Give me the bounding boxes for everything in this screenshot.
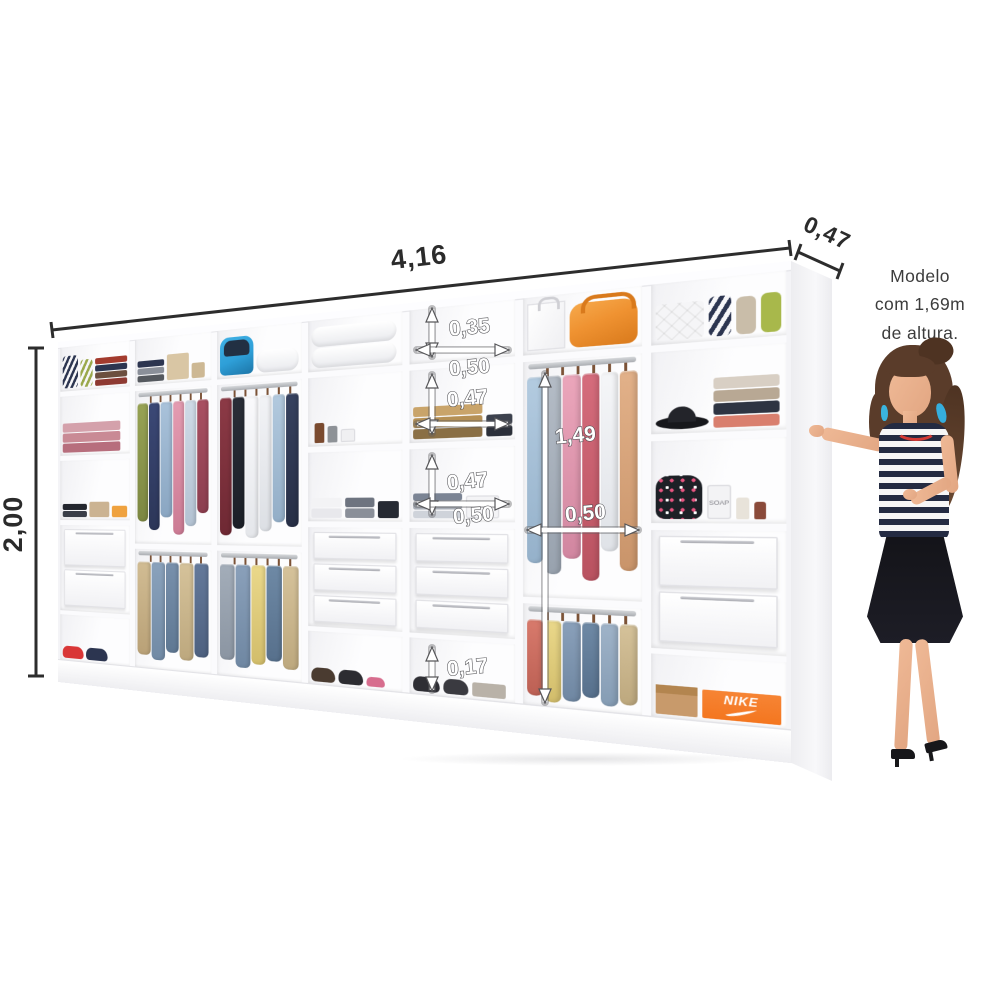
shelf-cell [60,340,129,391]
cardboard-box [656,684,698,717]
hanging-shirt [161,401,172,517]
folded-item [713,414,779,428]
width-dimension-label: 4,16 [389,239,449,275]
model-hand [903,489,917,500]
drawer-handle [75,532,113,535]
cosmetic-bottle [315,423,325,443]
shoe [443,678,468,695]
hanging-pants [151,562,164,661]
drawer [64,569,125,609]
wooden-box [192,362,205,378]
backpack [220,335,253,376]
drawer-handle [432,537,490,540]
drawer-handle [432,604,490,609]
drawer-handle [329,567,381,571]
hanging-shirt [286,393,299,527]
drawer [659,591,778,648]
storage-box [112,506,128,517]
pillow [735,295,755,334]
caption-line: Modelo [838,262,1000,290]
quilted-storage-box [656,300,705,341]
drawer-handle [329,536,381,539]
sneaker [63,645,84,659]
wooden-box [167,352,189,380]
shelf-cell [308,450,402,522]
hat-dome [668,406,696,423]
folded-item [63,441,121,453]
drawer-cell [651,530,786,656]
hanging-shirt [600,371,618,551]
boot [339,669,364,686]
hanging-shirt [563,374,580,559]
drawer-handle [680,596,754,602]
hanging-pants [563,621,580,702]
shelf-cell [308,371,402,447]
hanging-shirt [545,375,562,574]
model-neckline [895,419,937,441]
hanging-pants [620,624,638,706]
shoe-heel [895,757,899,767]
folded-sweaters [345,498,374,519]
backpack-flap [224,339,249,357]
drawer-cell [60,525,129,615]
hanging-cell [217,551,302,684]
sneaker [86,647,108,661]
folded-item [63,511,87,517]
shelf-cell [523,286,642,356]
height-dimension: 2,00 [0,348,44,676]
hanging-pants [267,565,282,662]
drawer [659,536,778,590]
model-leg [915,639,941,746]
folded-clothes-stack [63,504,87,517]
hanging-pants [283,566,298,671]
folded-sweaters [713,374,779,428]
hanging-pants [180,563,194,661]
hanging-cell [135,386,211,545]
folded-towels [311,498,341,518]
hanging-shirt [272,394,285,523]
hanging-cell [523,603,642,716]
soap-bottle: SOAP [707,485,731,520]
wardrobe-column-6 [523,286,642,717]
shoe-slot [60,614,129,667]
model-figure [845,345,1000,800]
folded-cushions-stack [95,355,127,386]
wardrobe-column-1 [60,340,129,667]
hanging-shirt [259,395,271,532]
cosmetic-bottle [736,497,749,519]
drawer [314,563,397,593]
shelf-cell [410,363,516,443]
shelf-cell [651,270,786,345]
dimension-tick [789,240,791,256]
floppy-hat [656,405,709,430]
wardrobe-column-2 [135,332,211,675]
soap-bottle-label: SOAP [709,498,729,505]
hanging-pants [582,622,599,699]
folded-item [311,508,341,517]
hanging-shirt [185,400,196,526]
pillow [761,291,782,332]
hanging-jeans-rack [523,619,642,711]
folded-item [713,400,779,415]
folded-item [413,493,462,501]
hanging-pants [220,564,234,660]
hanging-pants [235,564,250,668]
caption-line: de altura. [838,319,1000,347]
drawer [314,532,397,561]
hanging-pants [251,565,266,665]
storage-box [89,502,109,517]
folded-towels [63,420,121,452]
shoe-heel [928,751,934,762]
shelf-cell [135,332,211,386]
shopping-bag [527,300,566,351]
hanging-shirts-rack [523,370,642,583]
model-hand [809,425,824,437]
shelf-cell [308,311,402,372]
earring [881,405,888,421]
drawer [415,533,508,564]
hanging-pants [545,620,562,703]
box-flap [656,684,698,696]
cosmetic-bottle [754,502,766,520]
dimension-tick [51,322,53,338]
orange-duffel-bag [570,297,638,348]
storage-box [472,682,506,699]
nike-swoosh-icon [723,706,759,719]
folded-item [311,498,341,508]
chevron-pillow [709,295,730,337]
flat-shoe [366,677,384,688]
drawer [415,566,508,598]
dimension-tick [795,244,801,260]
white-pillow [256,347,299,374]
depth-dimension-label: 0,47 [800,211,855,255]
product-dimension-image: SOAP NIKE [0,0,1000,1000]
shelf-cell [60,392,129,456]
hanging-shirt [138,403,149,522]
polka-dot-backpack [656,475,703,519]
wardrobe-column-5 [410,299,516,704]
boot [311,667,335,683]
hanging-pants [600,623,618,707]
chevron-pillow [80,359,92,388]
hanging-cell [523,353,642,601]
wardrobe-column-7: SOAP NIKE [651,270,786,730]
folded-item [345,498,374,508]
chevron-pillow [63,355,78,389]
drawer-handle [680,540,754,544]
hanging-shirt [582,373,599,581]
storage-box [378,501,399,518]
drawer-handle [329,599,381,604]
folded-item [413,502,462,510]
model-bangs [885,355,935,377]
hanging-shirt [197,399,208,513]
shelf-cell [60,459,129,521]
folded-clothes-stack [413,493,462,518]
hanging-pants [195,563,209,658]
hanging-pants [166,562,179,653]
folded-item [63,504,87,510]
drawer-handle [432,570,490,574]
shoe [413,676,440,693]
hanging-cell [135,549,211,675]
hanging-shirts-rack [135,399,211,535]
hanging-pants [527,619,543,696]
folded-clothes-stack [138,359,165,383]
drawer [314,595,397,627]
hanging-shirt [149,402,160,530]
hanging-pants-rack [135,561,211,665]
hanging-jacket [220,397,232,535]
floor-shadow [400,752,760,766]
caption-line: com 1,69m [838,290,1000,318]
cosmetic-jar [341,428,355,442]
hanging-shirt [527,376,543,563]
folded-item [138,374,165,383]
drawer [64,529,125,567]
folded-item [413,511,462,519]
hanging-cell [217,379,302,547]
bag-handle [538,296,560,311]
shelf-cell-empty [410,299,516,364]
model-leg [894,639,913,752]
hanging-shirt [620,370,638,571]
wardrobe-front: SOAP NIKE [58,261,792,763]
folded-item [413,426,482,439]
drawer [415,600,508,634]
drawer-cell [308,527,402,632]
wardrobe-column-3 [217,322,302,684]
white-pillows-stack [311,319,396,369]
folded-shirts-stack [413,404,482,440]
duffel-handle [581,290,636,313]
hanging-pants-rack [217,564,302,673]
shelf-cell: SOAP [651,437,786,524]
folded-item [95,377,127,386]
drawer-cell [410,528,516,639]
wardrobe-column-4 [308,311,402,693]
nike-shoebox: NIKE [702,689,781,725]
shelf-cell [651,342,786,434]
hanging-jacket [233,396,245,528]
model-caption: Modelo com 1,69m de altura. [838,262,1000,347]
shelf-cell [217,322,302,380]
wardrobe-side-panel [791,261,832,781]
hanging-shirt [173,401,184,535]
hanging-pants [138,561,151,655]
model-skirt [867,537,963,643]
storage-basket [466,495,499,518]
cosmetic-bottle [328,426,338,443]
folded-item [486,414,512,426]
height-dimension-label: 2,00 [0,496,28,553]
shelf-cell [410,446,516,523]
folded-item [486,425,512,436]
hanging-shirt [246,396,258,538]
hanging-shirts-rack [217,393,302,539]
folded-item [345,508,374,518]
drawer-handle [75,573,113,577]
folded-pants-stack [486,414,512,437]
